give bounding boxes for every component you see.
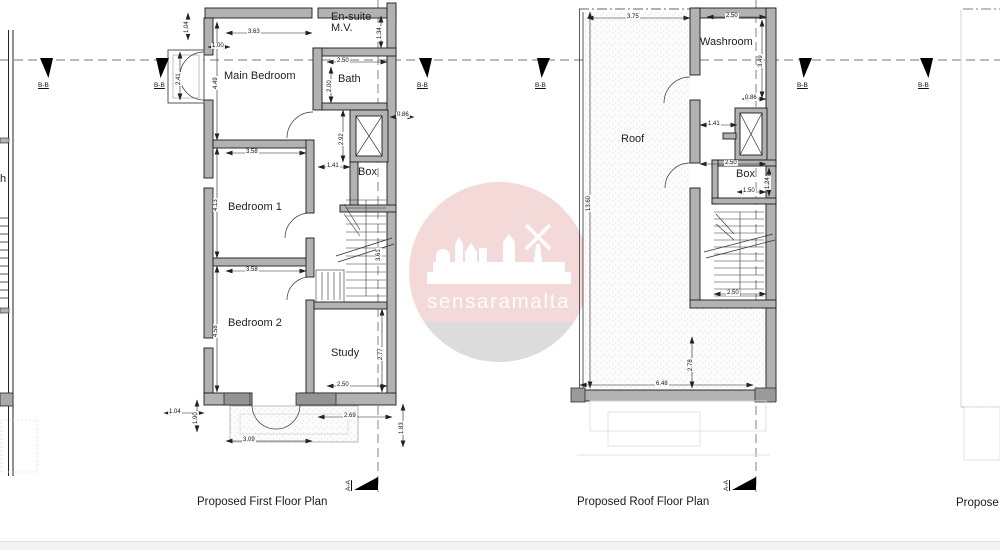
room-label: Bedroom 1 [228, 202, 282, 213]
room-label: h [0, 174, 6, 185]
dimension-label: 4.13 [213, 198, 219, 212]
dimension-label: 1.04 [168, 409, 182, 415]
plan-title-partial: Propose [956, 497, 999, 509]
dimension-label: 4.49 [213, 76, 219, 90]
dimension-label: 1.90 [193, 411, 199, 425]
section-marker-aa-label: A-A [345, 480, 352, 491]
room-label: Bath [338, 74, 361, 85]
dimension-label: 2.41 [176, 72, 182, 86]
room-label: Bedroom 2 [228, 318, 282, 329]
dimension-label: 1.50 [742, 188, 756, 194]
dimension-label: 3.58 [245, 149, 259, 155]
dimension-label: 1.41 [326, 163, 340, 169]
labels-layer: Main BedroomEn-suiteM.V.BathBoxBedroom 1… [0, 0, 1000, 550]
section-marker-bb-label: B-B [38, 82, 49, 89]
dimension-label: 2.77 [378, 347, 384, 361]
dimension-label: 2.92 [339, 132, 345, 146]
dimension-label: 2.50 [726, 290, 740, 296]
room-label: Washroom [700, 37, 753, 48]
dimension-label: 6.48 [655, 381, 669, 387]
dimension-label: 3.75 [626, 14, 640, 20]
plan-title-first-floor: Proposed First Floor Plan [197, 496, 327, 508]
dimension-label: 2.50 [725, 13, 739, 19]
dimension-label: 1.41 [707, 121, 721, 127]
section-marker-bb-label: B-B [154, 82, 165, 89]
room-label: Box [358, 167, 377, 178]
section-marker-bb-icon [537, 58, 550, 78]
dimension-label: 3.61 [376, 248, 382, 262]
section-marker-bb-label: B-B [535, 82, 546, 89]
section-marker-aa-label: A-A [723, 480, 730, 491]
dimension-label: 2.50 [724, 160, 738, 166]
dimension-label: 1.34 [377, 26, 383, 40]
room-label: M.V. [331, 23, 353, 34]
dimension-label: 2.50 [336, 382, 350, 388]
plan-title-roof: Proposed Roof Floor Plan [577, 496, 709, 508]
dimension-label: 2.78 [688, 358, 694, 372]
floorplan-sheet: sensaramalta [0, 0, 1000, 550]
section-marker-bb-icon [156, 58, 169, 78]
room-label: Study [331, 348, 359, 359]
sheet-edge [0, 541, 1000, 550]
dimension-label: 0.86 [744, 95, 758, 101]
section-marker-bb-label: B-B [918, 82, 929, 89]
dimension-label: 3.09 [242, 437, 256, 443]
section-marker-bb-icon [799, 58, 812, 78]
dimension-label: 2.50 [336, 58, 350, 64]
dimension-label: 1.83 [399, 421, 405, 435]
dimension-label: 1.04 [184, 20, 190, 34]
dimension-label: 4.58 [213, 324, 219, 338]
dimension-label: 2.00 [327, 79, 333, 93]
room-label: Main Bedroom [224, 71, 296, 82]
dimension-label: 1.00 [211, 43, 225, 49]
section-marker-bb-icon [419, 58, 432, 78]
dimension-label: 2.69 [343, 413, 357, 419]
section-marker-bb-icon [40, 58, 53, 78]
section-marker-bb-label: B-B [797, 82, 808, 89]
room-label: Box [736, 169, 755, 180]
section-marker-aa-icon [732, 477, 756, 490]
section-marker-bb-icon [920, 58, 933, 78]
dimension-label: 1.24 [765, 176, 771, 190]
dimension-label: 0.86 [396, 112, 410, 118]
section-marker-bb-label: B-B [417, 82, 428, 89]
room-label: Roof [621, 134, 644, 145]
dimension-label: 3.49 [758, 54, 764, 68]
section-marker-aa-icon [354, 477, 378, 490]
dimension-label: 3.58 [245, 267, 259, 273]
dimension-label: 3.63 [247, 29, 261, 35]
dimension-label: 13.60 [586, 195, 592, 212]
